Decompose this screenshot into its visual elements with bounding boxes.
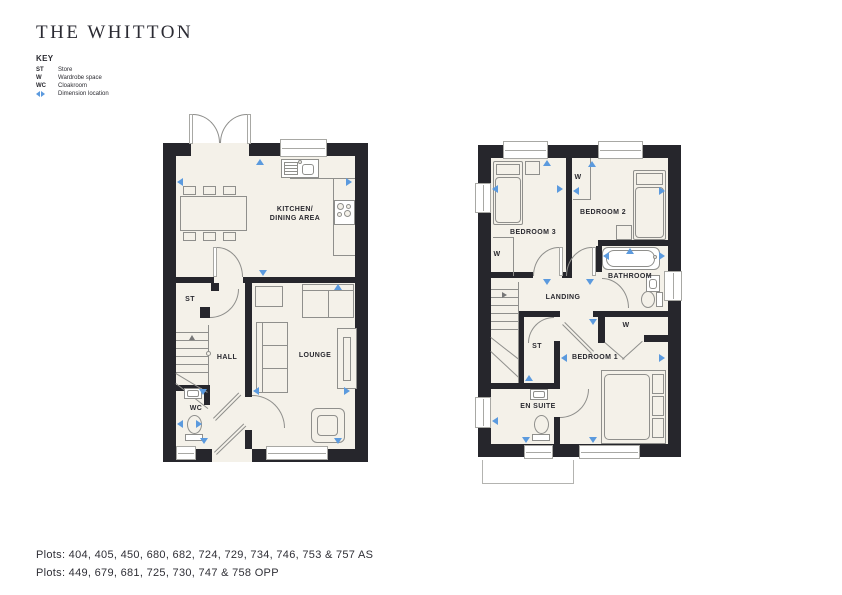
dimension-arrow-icon	[589, 319, 597, 325]
dimension-arrow-icon	[256, 159, 264, 165]
toilet-cistern	[532, 434, 550, 441]
sofa-back-line	[262, 323, 263, 392]
dimension-arrow-icon	[603, 252, 609, 260]
bath-tap	[653, 255, 657, 259]
dimension-arrow-icon	[525, 375, 533, 381]
sofa-seat-line	[328, 291, 329, 318]
dimension-arrow-icon	[492, 185, 498, 193]
staircase	[176, 325, 208, 376]
key-abbr: ST	[36, 66, 58, 74]
door-swing-arc	[193, 114, 220, 143]
dimension-arrow-icon	[259, 270, 267, 276]
wall	[598, 240, 668, 246]
stair-direction-icon	[189, 335, 195, 340]
key-item-wardrobe: W Wardrobe space	[36, 74, 109, 82]
wardrobe-label: W	[571, 174, 585, 183]
wardrobe-line	[513, 237, 514, 276]
wall	[245, 430, 252, 449]
sofa	[256, 322, 288, 393]
first-floor-plan: BEDROOM 3 BEDROOM 2 W W BATHROOM LANDING…	[478, 145, 681, 457]
tap	[298, 160, 302, 164]
pillow	[652, 374, 664, 394]
wall	[554, 341, 560, 389]
dimension-arrow-icon	[543, 279, 551, 285]
sofa-seat-line	[263, 345, 288, 346]
wall	[245, 283, 252, 397]
dining-chair	[223, 186, 236, 195]
pillow	[652, 396, 664, 416]
key-legend: KEY ST Store W Wardrobe space WC Cloakro…	[36, 54, 109, 98]
dimension-arrow-icon	[589, 437, 597, 443]
dining-chair	[203, 186, 216, 195]
key-item-cloakroom: WC Cloakroom	[36, 82, 109, 90]
dimension-arrow-icon	[543, 160, 551, 166]
key-item-store: ST Store	[36, 66, 109, 74]
sideboard	[255, 286, 283, 307]
plots-line-2: Plots: 449, 679, 681, 725, 730, 747 & 75…	[36, 567, 279, 579]
toilet	[641, 291, 655, 308]
wall	[554, 417, 560, 444]
dining-chair	[223, 232, 236, 241]
bedside-table	[616, 225, 632, 240]
key-label: Dimension location	[58, 90, 109, 98]
sink-drainer	[284, 162, 298, 175]
bathroom-flue-window	[664, 271, 682, 301]
wardrobe-stub	[644, 335, 668, 342]
hob-ring	[337, 203, 344, 210]
stair-edge	[518, 282, 519, 383]
key-label: Store	[58, 66, 72, 74]
room-label-ensuite: EN SUITE	[513, 403, 563, 412]
sink-basin	[302, 164, 314, 175]
wall	[243, 277, 355, 283]
page-title: THE WHITTON	[36, 22, 193, 44]
room-label-wc: WC	[181, 405, 211, 414]
room-label-bathroom: BATHROOM	[595, 273, 665, 282]
dimension-arrow-icon	[253, 387, 259, 395]
toilet	[534, 415, 549, 434]
toilet-cistern	[656, 292, 663, 307]
french-door-leaf	[247, 114, 251, 144]
dimension-arrow-icon	[588, 161, 596, 167]
dimension-arrow-icon	[334, 284, 342, 290]
bedroom3-side-window	[475, 183, 491, 213]
hob-ring	[344, 210, 351, 217]
wardrobe-label: W	[490, 251, 504, 260]
dimension-arrow-icon	[344, 387, 350, 395]
room-label-bedroom2: BEDROOM 2	[573, 209, 633, 218]
room-label-hall: HALL	[207, 354, 247, 363]
bedroom2-window	[598, 141, 643, 159]
dimension-arrow-icon	[199, 389, 207, 395]
dimension-arrow-icon	[522, 437, 530, 443]
room-label-store: ST	[180, 296, 200, 305]
wc-basin-bowl	[187, 390, 199, 397]
wardrobe-line	[573, 199, 591, 200]
staircase	[491, 282, 518, 337]
dimension-arrow-icon	[659, 187, 665, 195]
dimension-arrow-icon	[177, 420, 183, 428]
wardrobe-stub	[598, 317, 605, 343]
bedroom2-door-leaf	[592, 247, 596, 276]
dimension-arrow-icon	[200, 438, 208, 444]
dimension-arrow-icon	[557, 185, 563, 193]
key-item-dimension: Dimension location	[36, 90, 109, 98]
stair-direction-icon	[502, 292, 507, 298]
wall	[491, 272, 533, 278]
dining-chair	[183, 186, 196, 195]
room-label-landing: LANDING	[533, 294, 593, 303]
ensuite-window	[524, 445, 553, 459]
key-abbr: W	[36, 74, 58, 82]
dimension-arrow-icon	[334, 438, 342, 444]
pillow	[636, 173, 663, 185]
sofa-seat-line	[263, 368, 288, 369]
dimension-arrow-icon	[492, 417, 498, 425]
key-label: Wardrobe space	[58, 74, 102, 82]
dimension-arrow-icon	[586, 279, 594, 285]
dimension-arrow-icon	[659, 252, 665, 260]
hob-ring	[346, 204, 351, 209]
armchair-seat	[317, 415, 338, 436]
room-label-kitchen: KITCHEN/ DINING AREA	[255, 206, 335, 223]
dimension-arrow-icon	[573, 187, 579, 195]
dining-chair	[203, 232, 216, 241]
plots-line-1: Plots: 404, 405, 450, 680, 682, 724, 729…	[36, 549, 373, 561]
wall	[176, 277, 214, 283]
basin-bowl	[533, 391, 545, 398]
key-label: Cloakroom	[58, 82, 87, 90]
door-swing-arc	[220, 114, 247, 143]
dimension-arrow-icon	[626, 248, 634, 254]
key-heading: KEY	[36, 54, 109, 63]
wc-window	[176, 446, 196, 460]
room-label-bedroom3: BEDROOM 3	[503, 229, 563, 238]
pillow	[496, 164, 520, 175]
bedroom3-window	[503, 141, 548, 159]
ground-floor-plan: KITCHEN/ DINING AREA ST HALL WC LOUNGE	[163, 143, 368, 462]
bedside-table	[525, 161, 540, 175]
room-label-store: ST	[527, 343, 547, 352]
dimension-arrow-icon	[659, 354, 665, 362]
dimension-arrow-icon	[177, 178, 183, 186]
wardrobe-label: W	[619, 322, 633, 331]
duvet	[604, 374, 650, 440]
dimension-arrow-icon	[196, 420, 202, 428]
french-door-opening	[191, 143, 249, 156]
dining-chair	[183, 232, 196, 241]
hob-ring	[337, 212, 342, 217]
duvet	[495, 177, 521, 223]
lounge-window	[266, 446, 328, 460]
room-label-lounge: LOUNGE	[285, 352, 345, 361]
room-label-bedroom1: BEDROOM 1	[565, 354, 625, 363]
dimension-location-icon	[36, 90, 58, 98]
counter-edge	[333, 255, 355, 256]
lower-storey-outline	[482, 460, 574, 484]
kitchen-window	[280, 139, 327, 157]
dimension-arrow-icon	[346, 178, 352, 186]
pillow	[652, 418, 664, 438]
dining-table	[180, 196, 247, 231]
bedroom3-door-leaf	[559, 247, 563, 276]
wall-stub	[200, 307, 210, 318]
key-abbr: WC	[36, 82, 58, 90]
ensuite-side-window	[475, 397, 491, 428]
bedroom1-window	[579, 445, 640, 459]
